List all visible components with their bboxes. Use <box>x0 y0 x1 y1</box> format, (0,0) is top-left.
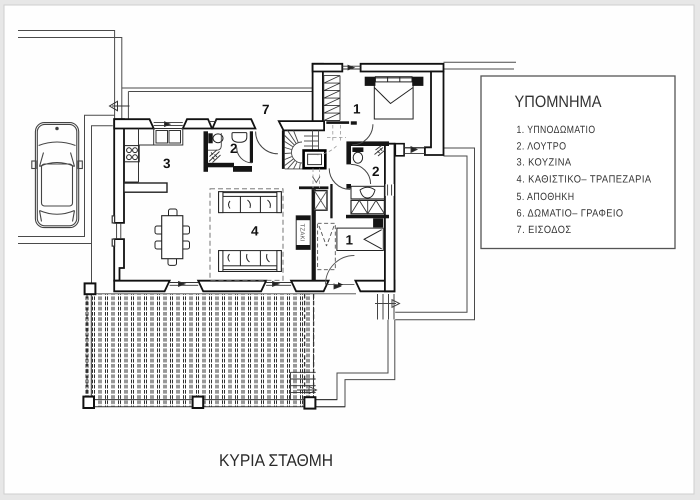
svg-text:ΚΥΡΙΑ ΣΤΑΘΜΗ: ΚΥΡΙΑ ΣΤΑΘΜΗ <box>219 451 333 470</box>
svg-text:3: 3 <box>163 156 171 171</box>
svg-text:2. ΛΟΥΤΡΟ: 2. ΛΟΥΤΡΟ <box>517 141 567 153</box>
svg-text:7. ΕΙΣΟΔΟΣ: 7. ΕΙΣΟΔΟΣ <box>517 224 572 236</box>
svg-text:6. ΔΩΜΑΤΙΟ– ΓΡΑΦΕΙΟ: 6. ΔΩΜΑΤΙΟ– ΓΡΑΦΕΙΟ <box>517 208 624 220</box>
svg-text:7: 7 <box>262 102 270 117</box>
svg-text:4: 4 <box>251 224 259 239</box>
svg-text:1: 1 <box>346 233 354 248</box>
svg-text:2: 2 <box>372 164 380 179</box>
svg-text:2: 2 <box>230 141 238 156</box>
svg-text:ΥΠΟΜΝΗΜΑ: ΥΠΟΜΝΗΜΑ <box>515 93 602 111</box>
svg-text:1. ΥΠΝΟΔΩΜΑΤΙΟ: 1. ΥΠΝΟΔΩΜΑΤΙΟ <box>517 124 596 136</box>
svg-text:3. ΚΟΥΖΙΝΑ: 3. ΚΟΥΖΙΝΑ <box>517 157 572 169</box>
svg-text:TZAKI: TZAKI <box>299 224 306 242</box>
svg-text:5. ΑΠΟΘΗΚΗ: 5. ΑΠΟΘΗΚΗ <box>517 191 575 203</box>
svg-text:1: 1 <box>353 102 361 117</box>
svg-text:4. ΚΑΘΙΣΤΙΚΟ– ΤΡΑΠΕΖΑΡΙΑ: 4. ΚΑΘΙΣΤΙΚΟ– ΤΡΑΠΕΖΑΡΙΑ <box>517 174 652 186</box>
